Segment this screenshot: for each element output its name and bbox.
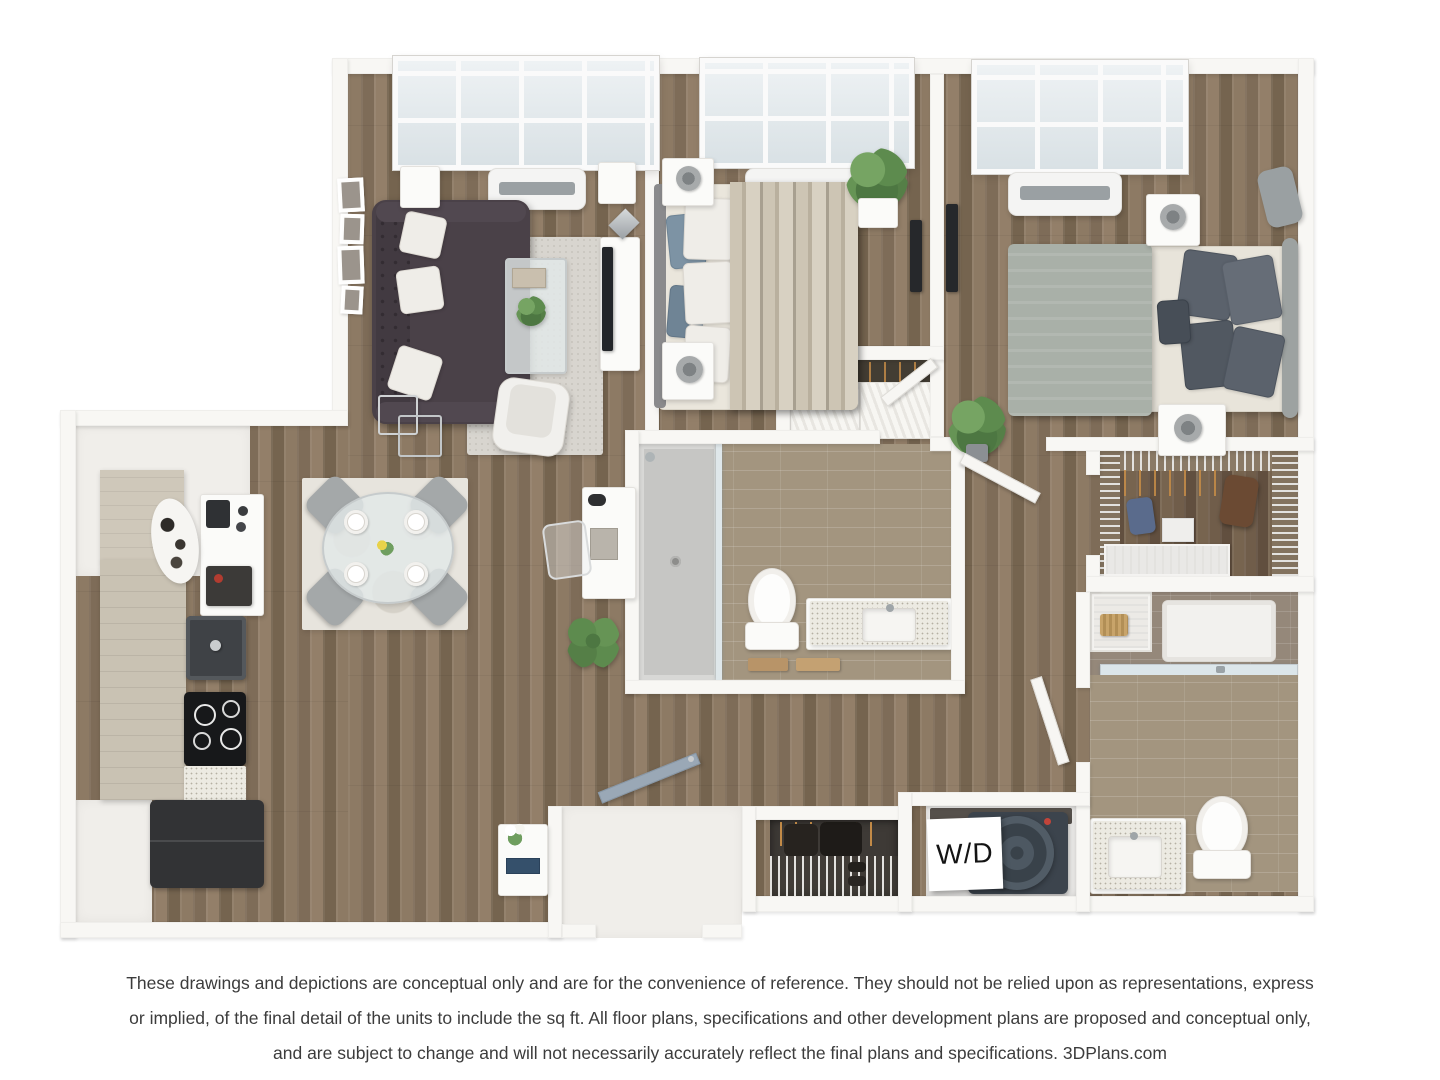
wall-bathroom2-left-b [1076,762,1090,912]
side-table-cube [400,166,440,208]
wall-entry-right [742,806,756,912]
bedroom2-window [972,60,1188,174]
dinner-plate [344,562,368,586]
bed1-wall-tv [910,220,922,292]
burner-icon [193,732,211,750]
wall-right-outer [1298,58,1314,912]
wall-walkin-left-a [1086,451,1100,475]
bed1-plant-stand [858,198,898,228]
burner-icon [220,728,242,750]
walkin-hangers [1124,470,1216,496]
burner-icon [222,700,240,718]
bed1-lamp [676,356,703,383]
sofa-pillow [395,265,445,315]
linen-basket [1100,614,1128,636]
refrigerator-door-line [150,840,264,842]
shower-drain [670,556,681,567]
red-mug-icon [214,574,223,583]
kitchen-faucet-icon [210,640,221,651]
bed1-duvet [730,182,858,410]
bath-mat [748,658,788,671]
wall-art-frame [337,177,365,212]
dinner-plate [404,562,428,586]
bathroom1-sink [862,608,916,642]
kitchen-pale-floor-2 [76,800,152,922]
wall-coat-closet-top [756,806,912,820]
wall-laundry-top [912,792,1090,806]
bed2-blanket [1008,244,1152,416]
wd-label: W/D [936,837,995,871]
bath-mat [796,658,840,671]
refrigerator [150,800,264,888]
bathroom1-toilet-tank [745,622,799,650]
wall-wing-bottom-outer [60,922,562,938]
serving-tray [206,566,252,606]
wall-art-frame [339,214,364,245]
bathroom2-sink [1108,836,1162,878]
walkin-clothes [1126,496,1157,535]
bed2-headboard [1282,238,1298,418]
corner-display-shelf [598,162,636,204]
wall-art-frame [337,246,364,285]
bed2-pillow-dark [1221,254,1283,326]
wall-entry-outer-a [562,924,596,938]
dinner-plate [344,510,368,534]
sofa-pillow [398,210,448,260]
tv-screen [602,247,613,351]
console-flowers [500,820,530,846]
walkin-storage-box [1162,518,1194,542]
coffee-cup-icon [236,522,246,532]
wall-bathroom2-left-a [1076,592,1090,688]
bed2-lamp [1174,414,1202,442]
wall-art-frame [340,285,363,314]
kitchen-cabinet-run [100,560,186,800]
disclaimer-line-2: or implied, of the final detail of the u… [0,1001,1440,1036]
bed2-lamp [1160,204,1186,230]
living-room-window [393,56,659,170]
wall-wing-top-outer [60,410,348,426]
sofa-arm [376,202,526,222]
desk-books [590,528,618,560]
disclaimer-text: These drawings and depictions are concep… [0,966,1440,1071]
bedroom2-ac-unit [1008,172,1122,216]
bed2-accent-pillow [1157,299,1192,345]
armchair-seat [505,383,558,439]
disclaimer-line-3: and are subject to change and will not n… [0,1036,1440,1071]
desk-chair [541,519,592,581]
bathroom2-faucet-icon [1130,832,1138,840]
wall-entry-left [548,806,562,938]
ac-vent [1020,186,1110,199]
shower-head-icon [645,452,655,462]
console-books [506,858,540,874]
coat-closet-shoes [848,862,866,872]
desk-lamp-icon [588,494,606,506]
bed1-pillow [682,261,735,326]
wall-bathroom1-top [625,430,880,444]
wall-bottom-right-outer [742,896,1314,912]
entry-floor [562,806,742,938]
coat-closet-clothes [784,824,818,856]
burner-icon [194,704,216,726]
bathroom1-faucet-icon [886,604,894,612]
floor-plant-desk [566,612,620,670]
wd-label-card: W/D [927,817,1003,892]
wall-closet-divider [898,792,912,912]
dining-centerpiece [374,538,394,556]
disclaimer-line-1: These drawings and depictions are concep… [0,966,1440,1001]
walkin-shelf-right [1272,451,1298,576]
shower-door-handle-icon [1216,666,1225,673]
bathroom2-shower-base [1162,600,1276,662]
coffee-table-books [512,268,546,288]
bathroom1-shower-glass [716,444,722,680]
bed1-lamp [676,166,701,191]
dinner-plate [404,510,428,534]
wall-bathroom1-bottom [625,680,965,694]
bed1-pillow [683,197,735,261]
washer-indicator-icon [1044,818,1051,825]
coat-closet-wire-shelf [770,856,898,896]
wall-walkin-bottom [1086,576,1314,592]
espresso-machine-icon [206,500,230,528]
wall-bathroom1-right [951,430,965,694]
coffee-table-plant [516,296,546,326]
bathroom2-toilet-tank [1193,850,1251,879]
coat-closet-clothes [820,822,862,856]
wall-entry-outer-b [702,924,742,938]
floor-plan-scene: W/D [0,0,1440,950]
kitchen-counter [184,766,246,802]
coat-closet-shoes [848,876,866,886]
walkin-basket-rail [1104,544,1230,576]
bed2-wall-tv [946,204,958,292]
ac-vent [499,182,576,195]
wall-bedroom1-bedroom2 [930,74,944,437]
wall-wing-left-outer [60,410,76,938]
nesting-tables [398,415,442,457]
entry-door-handle-icon [688,756,694,762]
coffee-cup-icon [238,506,248,516]
